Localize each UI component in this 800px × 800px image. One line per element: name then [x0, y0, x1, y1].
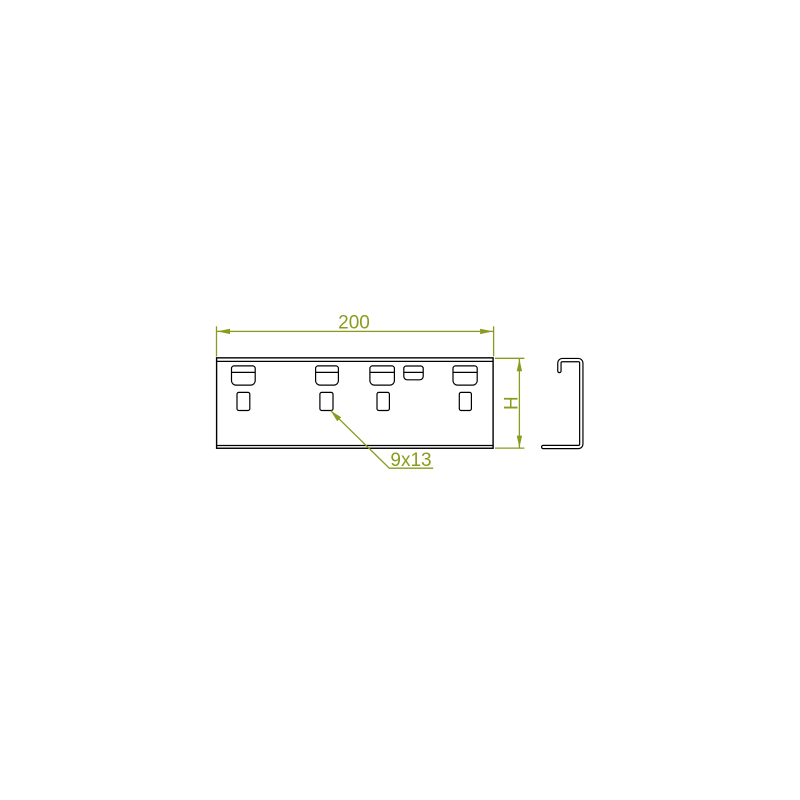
- svg-text:9x13: 9x13: [390, 450, 431, 471]
- svg-text:200: 200: [338, 313, 370, 334]
- svg-text:H: H: [502, 396, 523, 410]
